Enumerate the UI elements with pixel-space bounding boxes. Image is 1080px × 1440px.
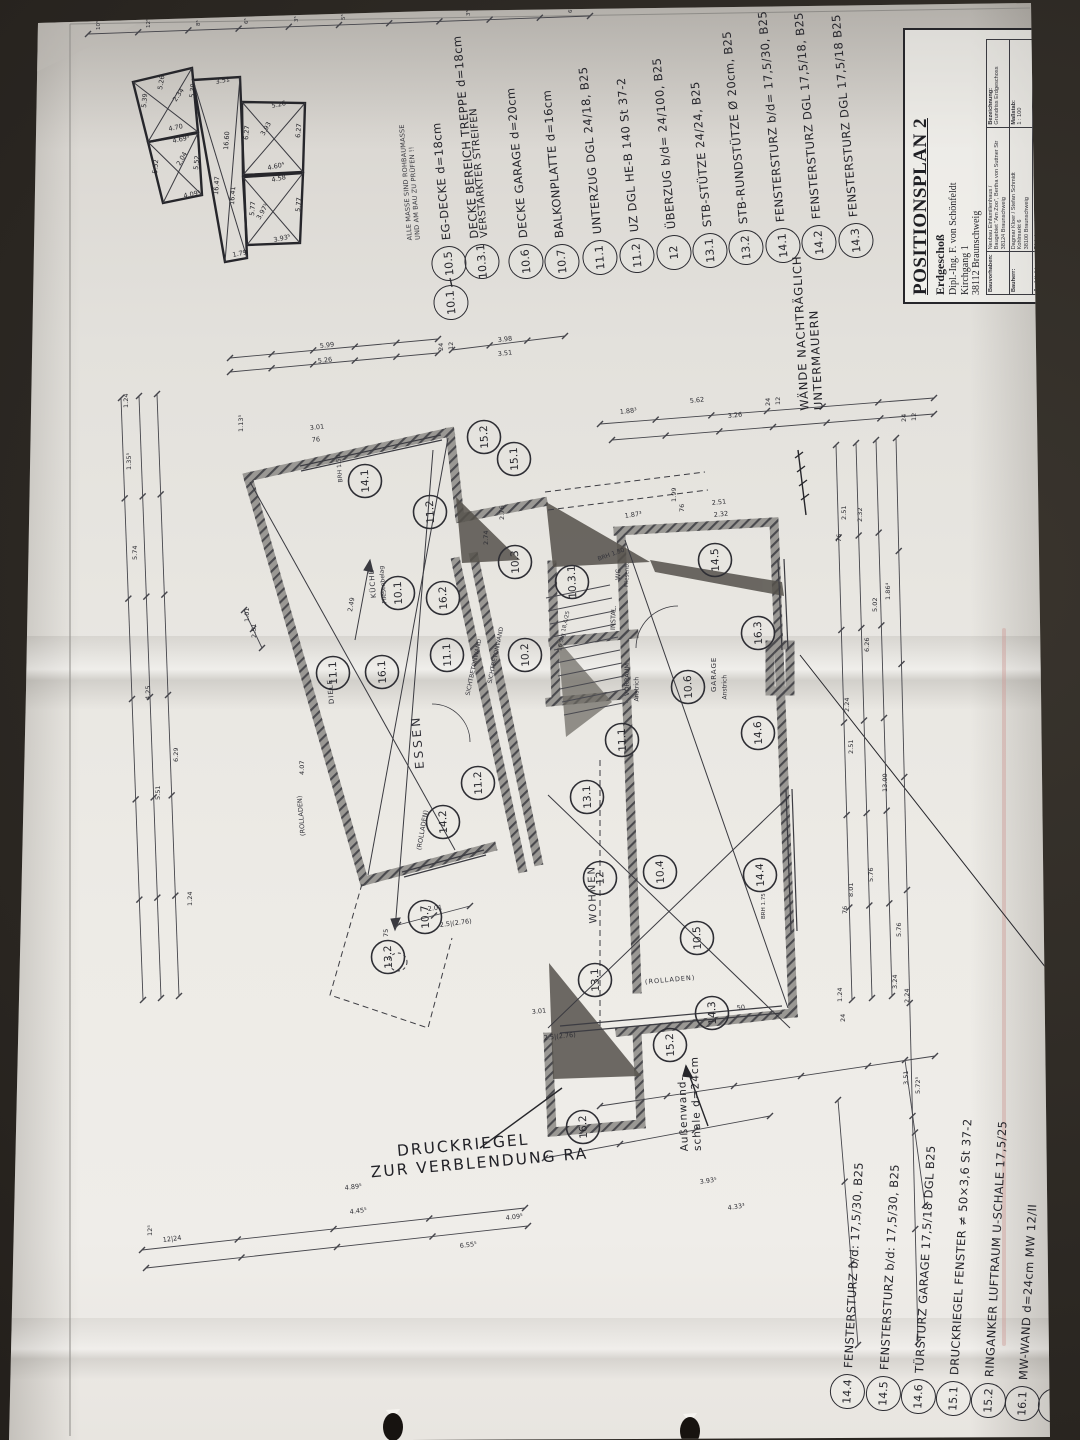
position-marker: 11.1 (606, 724, 639, 757)
dimension-label: 75 (382, 929, 390, 937)
dimension-label: 3.26 (727, 411, 742, 420)
area-sketch-value: 16.41 (228, 186, 237, 205)
dimension-label: 1.35⁵ (125, 453, 133, 470)
position-marker-number: 11.2 (424, 500, 437, 524)
area-sketch-value: 6.27 (294, 123, 303, 138)
legend-item-text: FENSTERSTURZ DGL 17,5/18, B25 (792, 12, 822, 220)
legend-item-text: DECKE GARAGE d=20cm (504, 87, 529, 239)
dimension-label: 3.01 (309, 423, 324, 432)
position-marker: 16.3 (742, 617, 775, 650)
dimension-label: 24 (900, 414, 908, 422)
dimension-label: 6.29 (172, 748, 180, 762)
dimension-label: 12 (910, 413, 918, 421)
dimension-label: 1.86⁴ (884, 583, 892, 600)
dimension-label: 12⁵ (145, 19, 152, 28)
dimension-label: 1.88³ (619, 406, 637, 416)
legend-item-text: FENSTERSTURZ b/d: 17,5/30, B25 (878, 1164, 901, 1371)
position-marker-number: 10.4 (654, 860, 667, 884)
room-label: Anstrich (722, 675, 729, 700)
position-marker-number: 16.3 (752, 621, 765, 645)
dimension-label: 4.33³ (727, 1202, 745, 1212)
position-marker-number: 13.1 (581, 785, 594, 809)
dimension-label: 5.72⁵ (914, 1077, 922, 1094)
position-marker-number: 14.6 (752, 721, 765, 745)
tb-right-cell: Bezeichnung: Grundriss Erdgeschoss (986, 40, 1009, 128)
dimension-label: 1.13⁵ (237, 415, 245, 432)
tb-row-value: Dagmar Kloer / Stefan Schmidt Kohlmarkt … (1009, 127, 1032, 252)
dimension-label: 5.99 (319, 341, 334, 350)
position-marker-number: 11.2 (472, 771, 485, 795)
dimension-tick (259, 645, 265, 651)
dimension-label: 6⁵ (243, 18, 250, 24)
position-marker: 14.4 (744, 859, 777, 892)
legend-item: 10.1 (432, 284, 469, 322)
legend-item-text: MW-WAND d=24cm MW 12/II (1017, 1204, 1038, 1381)
position-marker: 10.5 (681, 922, 714, 955)
position-marker-number: 15.2 (478, 425, 491, 449)
dimension-label: 2.32 (713, 510, 728, 519)
legend-item-text: UNTERZUG DGL 24/18, B25 (577, 66, 604, 235)
position-marker: 11.2 (462, 767, 495, 800)
dimension-chain-line (600, 1056, 935, 1106)
position-number-circle: 16.2 (1037, 1387, 1074, 1424)
position-number-circle: 12 (655, 234, 693, 272)
note-aussenwand-schale: Außenwand- schale d=24cm (676, 1056, 706, 1152)
area-sketch-value: 4.09⁵ (183, 188, 202, 199)
dimension-label: 2.24 (843, 698, 851, 712)
dimension-tick (467, 903, 473, 909)
position-marker-number: 14.2 (437, 810, 450, 834)
title-block-content: POSITIONSPLAN 2 Erdgeschoß Dipl.-Ing. F.… (907, 34, 1035, 300)
legend-item-text: STB-WAND d=24cm, B25 (1050, 1229, 1070, 1382)
drawing-subtitle: Erdgeschoß (933, 39, 948, 295)
room-label: BRH 1.75 (761, 893, 767, 919)
position-marker-number: 13.1 (589, 968, 602, 992)
position-number-circle: 16.3 (1045, 960, 1080, 995)
dimension-label: 76 (835, 534, 843, 542)
dimension-label: 12 (447, 342, 455, 350)
position-marker-number: 10.1 (392, 581, 405, 605)
dimension-label: 5.76 (895, 923, 903, 937)
client-line: Kirchgang 1 (960, 39, 972, 295)
title-block-table: Bauvorhaben: Neubau Einfamilienhaus / Ba… (986, 39, 1056, 295)
room-label: WOHNEN (586, 865, 599, 924)
dimension-label: 1.24 (186, 892, 194, 906)
position-marker: 15.1 (498, 443, 531, 476)
dimension-label: 2.49 (346, 597, 356, 613)
position-number-circle: 10.6 (507, 243, 545, 281)
position-marker-number: 11.1 (441, 643, 454, 667)
dimension-label: 1.87³ (624, 510, 642, 520)
dimension-label: 24 (764, 398, 772, 406)
dimension-label: 2.76 (498, 506, 506, 520)
dimension-label: 2.5|(2.76) (439, 917, 472, 929)
dimension-label: 3.01 (531, 1007, 546, 1016)
dimension-label: 1.24 (836, 988, 844, 1002)
tb-row-value: Dipl.-Ing. - Architekt AKN Dietrich Bahr… (1032, 127, 1055, 252)
dimension-label: 13.00 (881, 773, 889, 792)
position-number-circle: 10.1 (432, 284, 470, 322)
room-label: GARAGE (710, 657, 718, 692)
dimension-label: 12⁵ (146, 1225, 154, 1236)
legend-item-text: EG-DECKE d=18cm (430, 122, 452, 241)
dimension-label: 2.51 (250, 624, 258, 638)
dimension-label: 3⁵ (465, 10, 472, 16)
dimension-label: 4.07 (298, 761, 306, 775)
photo-of-floor-plan: 10⁵12⁵8⁵6⁵3⁵5⁵3⁵6⁵5.995.263.983.5124123.… (0, 0, 1080, 1440)
dimension-label: 12 (774, 397, 782, 405)
tb-row-value: Neubau Einfamilienhaus / Baugebiet "Am Z… (986, 127, 1009, 252)
dimension-label: 24 (437, 343, 445, 351)
position-marker-number: 10.2 (519, 643, 532, 667)
tb-row-label: Architekt: (1032, 252, 1055, 295)
area-sketch-value: 4.70 (168, 122, 184, 133)
dimension-label: 3.51 (902, 1071, 910, 1085)
legend-item-text: STB-STÜTZE 24/24, B25 (689, 81, 714, 228)
position-marker-number: 14.4 (754, 863, 767, 887)
position-number-circle: 11.2 (618, 237, 656, 275)
room-label: Anstrich (634, 677, 641, 702)
dimension-label: 3⁵ (293, 16, 300, 22)
dimension-label: 24 (839, 1014, 847, 1022)
room-label: VORRAUM (623, 663, 631, 696)
dimension-label: 10⁵ (95, 21, 102, 30)
punch-holes (383, 1409, 700, 1440)
position-marker: 10.3.1 (556, 565, 589, 599)
position-marker: 11.2 (414, 496, 447, 529)
dimension-chain-line (230, 353, 438, 372)
dimension-label: 3.24 (891, 975, 899, 989)
position-marker-number: 10.5 (691, 926, 704, 950)
position-number-circle: 16.1 (1004, 1385, 1041, 1422)
position-number-circle: 15.1 (935, 1380, 972, 1417)
dimension-label: 5⁵ (340, 14, 347, 20)
client-line: Dipl.-Ing. F. von Schönfeldt (948, 39, 960, 295)
legend-item-text: DRUCKRIEGEL FENSTER ≠ 50×3,6 St 37-2 (948, 1118, 973, 1375)
position-marker: 16.2 (427, 582, 460, 615)
position-marker: 10.3 (499, 546, 532, 579)
dimension-label: 4.25 (144, 686, 152, 700)
dimension-label: 2.24 (903, 989, 911, 1003)
area-sketch-value: 5.26 (156, 75, 166, 91)
position-marker-number: 14.3 (706, 1001, 719, 1025)
dimension-label: 3.51 (497, 349, 512, 358)
dimension-label: 2.51 (847, 740, 855, 754)
position-marker: 11.1 (431, 639, 464, 672)
drawing-title: POSITIONSPLAN 2 (910, 39, 932, 295)
legend-item-text: MW-KAMINWAND d=17,5cm MW 12/II (1056, 726, 1068, 954)
dimension-label: 5.02 (871, 598, 879, 612)
position-marker-number: 13.2 (382, 945, 395, 969)
dimension-label: 3.93⁵ (699, 1176, 717, 1186)
dimension-label: 6.55⁵ (459, 1240, 477, 1250)
position-marker: 10.2 (509, 639, 542, 672)
position-number-circle: 11.1 (581, 239, 619, 277)
position-marker: 10.7 (409, 901, 442, 934)
position-marker-number: 15.1 (508, 447, 521, 471)
room-label: WC (614, 569, 622, 580)
dimension-label: 76 (841, 906, 849, 914)
area-sketch-labels: 5.262.345.395.394.704.69⁵2.045.525.524.0… (140, 75, 303, 259)
position-marker-number: 14.5 (709, 548, 722, 572)
position-number-circle: 10.5 (430, 245, 468, 283)
position-marker: 14.2 (427, 806, 460, 839)
dimension-label: 6⁵ (567, 7, 574, 13)
legend-item-text: STB-RUNDSTÜTZE Ø 20cm, B25 (721, 30, 750, 224)
position-marker: 16.1 (366, 656, 399, 689)
area-sketch-value: 5.52 (151, 159, 160, 174)
client-line: 38112 Braunschweig (971, 39, 983, 295)
dimension-label: 5.26 (317, 356, 332, 365)
position-number-circle: 15.2 (970, 1382, 1007, 1419)
dimension-label: 2.51 (711, 498, 726, 507)
area-sketch-value: 5.26 (271, 99, 287, 110)
dimension-label: 76 (678, 504, 686, 512)
dimension-label: 12|24 (162, 1234, 182, 1244)
position-number-circle: 10.3.1 (463, 243, 501, 281)
stair-tread (550, 611, 614, 624)
dimension-tick (431, 913, 437, 919)
area-sketch-value: 4.60⁴ (267, 160, 286, 171)
area-sketch-value: 5.77 (294, 197, 303, 212)
walls-hatch (248, 432, 793, 1132)
position-number-circle: 14.5 (865, 1375, 902, 1412)
dimension-label: 6.26 (863, 638, 871, 652)
position-marker-number: 15.2 (664, 1033, 677, 1057)
position-marker: 13.1 (571, 781, 604, 814)
paper-sheet: 10⁵12⁵8⁵6⁵3⁵5⁵3⁵6⁵5.995.263.983.5124123.… (0, 0, 1080, 1440)
area-sketch-value: 16.47 (212, 176, 221, 195)
position-marker-number: 10.7 (419, 905, 432, 929)
position-marker: 14.1 (349, 465, 382, 498)
position-marker-number: 16.2 (437, 586, 450, 610)
dimension-label: 8.01 (847, 883, 855, 897)
position-marker-number: 16.1 (376, 660, 389, 684)
position-marker: 13.1 (579, 964, 612, 997)
legend-item-text: TÜRSTURZ GARAGE 17,5/18 DGL B25 (913, 1145, 937, 1373)
position-marker-number: 14.1 (359, 469, 372, 493)
tb-row-label: Bauvorhaben: (986, 252, 1009, 295)
position-marker-number: 11.1 (616, 728, 629, 752)
area-sketch-value: 6.27 (242, 125, 251, 140)
dimension-label: 5.62 (689, 396, 704, 405)
area-sketch-value: 4.58 (271, 173, 287, 184)
dimension-label: 5.74 (131, 546, 139, 560)
area-sketch-value: 5.77 (248, 201, 257, 216)
tb-right-cell: Zeichn.-Nr./Datum: 0424 - 5/08.08.04 - 0 (1032, 40, 1055, 128)
legend-item-text: RINGANKER LUFTRAUM U-SCHALE 17,5/25 (983, 1120, 1008, 1377)
area-sketch-value: 5.39 (140, 93, 149, 108)
dimension-label: 5.76 (867, 868, 875, 882)
position-number-circle: 10.7 (543, 243, 581, 281)
legend-item-text: UZ DGL HE-B 140 St 37-2 (615, 77, 641, 233)
dimension-label: 2.74 (482, 531, 490, 545)
position-marker-number: 10.6 (682, 675, 695, 699)
area-sketch-value: 16.60 (222, 131, 231, 150)
position-marker-number: 10.3 (509, 550, 522, 574)
tb-row-label: Bauherr: (1009, 252, 1032, 295)
area-sketch-value: 5.39 (188, 83, 197, 98)
legend-item-text: FENSTERSTURZ DGL 17,5/18 B25 (830, 14, 860, 218)
position-number-circle: 14.3 (837, 222, 875, 260)
dimension-label: 5.51 (154, 786, 162, 800)
position-marker: 13.2 (372, 941, 405, 974)
position-marker: 15.2 (468, 421, 501, 454)
legend-item-text: FENSTERSTURZ b/d: 17,5/30, B25 (842, 1162, 865, 1369)
tb-right-cell: Maßstab: 1 : 100 (1009, 40, 1032, 128)
position-marker: 10.4 (644, 856, 677, 889)
dimension-label: 4.45⁵ (349, 1206, 367, 1216)
stair-shading (558, 640, 612, 737)
dimension-label: 4.89⁵ (344, 1182, 362, 1192)
position-number-circle: 13.1 (691, 232, 729, 270)
position-number-circle: 14.4 (829, 1373, 866, 1410)
position-number-circle: 13.2 (727, 229, 765, 267)
area-sketch-value: 3.51 (215, 75, 231, 86)
position-marker: 14.6 (742, 717, 775, 750)
legend-item: 16.3MW-KAMINWAND d=17,5cm MW 12/II (1045, 726, 1079, 995)
dimension-label: 1.24 (122, 394, 130, 408)
legend-item-text: BALKONPLATTE d=16cm (540, 89, 565, 238)
dimension-label: 3.98 (497, 335, 512, 344)
position-number-circle: 14.6 (900, 1378, 937, 1415)
area-sketch-value: 5.52 (192, 155, 201, 170)
area-sketch-value: 2.34 (171, 87, 186, 103)
area-sketch-value: 2.04 (175, 150, 189, 167)
dimension-label: 1.01 (243, 608, 251, 622)
dimension-label: 4.09⁵ (505, 1212, 523, 1222)
dimension-label: 2.51 (840, 506, 848, 520)
dimension-label: 76 (311, 435, 320, 444)
room-label: Fliesenb. (624, 562, 631, 587)
dimension-label: 1.99 (670, 488, 678, 502)
area-sketch-value: 4.69⁵ (172, 133, 191, 144)
position-marker: 14.5 (699, 544, 732, 577)
dimension-label: 50 (736, 1003, 745, 1012)
legend-item-text: ÜBERZUG b/d= 24/100, B25 (650, 57, 677, 229)
title-block: POSITIONSPLAN 2 Erdgeschoß Dipl.-Ing. F.… (903, 28, 1041, 304)
dimension-label: 8⁵ (195, 20, 202, 26)
position-marker-number: 10.3.1 (566, 565, 580, 599)
room-label: INSTAL. (609, 605, 618, 630)
dimension-label: 2.32 (856, 508, 864, 522)
